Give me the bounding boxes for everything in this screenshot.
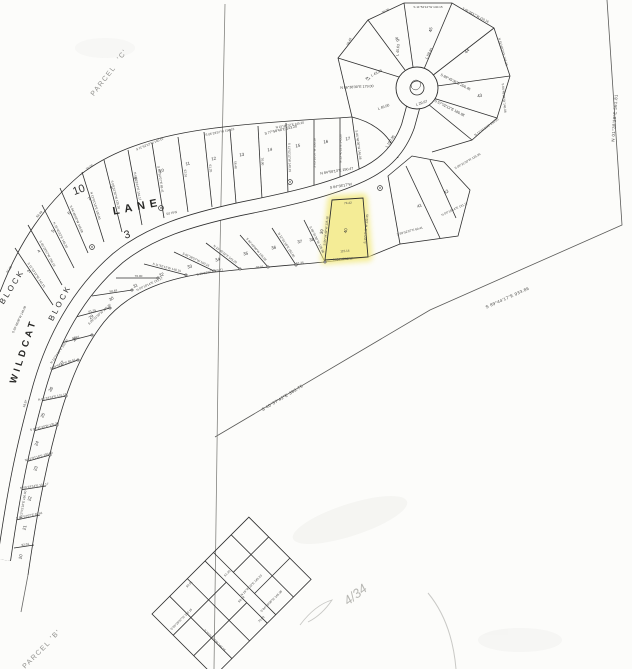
scallop-mark (267, 266, 269, 268)
scallop-mark (239, 268, 241, 270)
scallop-mark (185, 274, 187, 276)
micro-bearing-label: 58.48 (233, 161, 238, 169)
lot-40-top-length: 74.42 (344, 201, 352, 206)
micro-bearing-label: 61.35 (208, 164, 213, 172)
micro-bearing-label: S 05°28'57"W 150.16 (313, 138, 317, 168)
lot-40-bottom-length: 115.14 (340, 249, 350, 254)
scallop-mark (49, 454, 51, 456)
scallop-mark (295, 264, 297, 266)
micro-bearing-label: 70.00 (135, 274, 143, 278)
scallop-mark (157, 277, 159, 279)
micro-bearing-label: S 11°52'12"W 140.15 (287, 143, 292, 173)
highlight-lot-40: 40 74.42 115.14 N 84°48'08"W S 05°34'49"… (322, 198, 369, 262)
scallop-mark (109, 307, 111, 309)
scallop-mark (131, 289, 133, 291)
scallop-mark (324, 261, 326, 263)
micro-bearing-label: N 15°40'22"E 145.20 (339, 134, 343, 163)
scallop-mark (65, 395, 67, 397)
scallop-mark (213, 270, 215, 272)
scanned-plat-document: N 01°38'28"E 561.81 S 89°44'17"E 933.86 … (0, 0, 632, 669)
radius-point-dot (379, 187, 380, 188)
micro-bearing-label: 70.00 (260, 157, 264, 165)
radius-point-dot (91, 246, 92, 247)
scallop-mark (91, 334, 93, 336)
plat-map-scan: N 01°38'28"E 561.81 S 89°44'17"E 933.86 … (0, 0, 632, 669)
scallop-mark (77, 359, 79, 361)
scallop-mark (56, 424, 58, 426)
radius-point-dot (289, 181, 290, 182)
micro-bearing-label: S 11°52'12"W 140.15 (413, 5, 442, 9)
